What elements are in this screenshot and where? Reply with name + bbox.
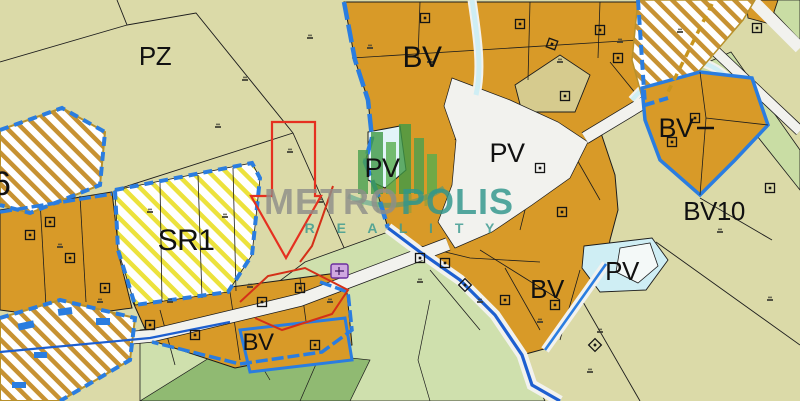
label-bv-top: BV: [402, 41, 442, 74]
watermark-reality: R E A L I T Y: [305, 220, 504, 236]
label-bv-right: BV: [658, 113, 694, 143]
label-pz: PZ: [139, 41, 172, 71]
map-symbol-marker: [331, 264, 348, 278]
watermark-polis: POLIS: [401, 181, 514, 222]
label-pv-east: PV: [605, 256, 640, 286]
label-sr1: SR1: [158, 224, 215, 257]
label-pv-center: PV: [489, 138, 525, 168]
label-pv-pond: PV: [364, 153, 400, 183]
label-bv-southwest: BV: [242, 329, 274, 356]
label-zone6: 6: [0, 165, 10, 203]
zoning-map-canvas[interactable]: METRO POLIS R E A L I T Y PZ BV BV BV10 …: [0, 0, 800, 401]
zoning-map-svg: METRO POLIS R E A L I T Y PZ BV BV BV10 …: [0, 0, 800, 401]
label-bv-south: BV: [530, 274, 565, 304]
watermark-metro: METRO: [264, 181, 399, 222]
label-bv10: BV10: [683, 196, 745, 226]
